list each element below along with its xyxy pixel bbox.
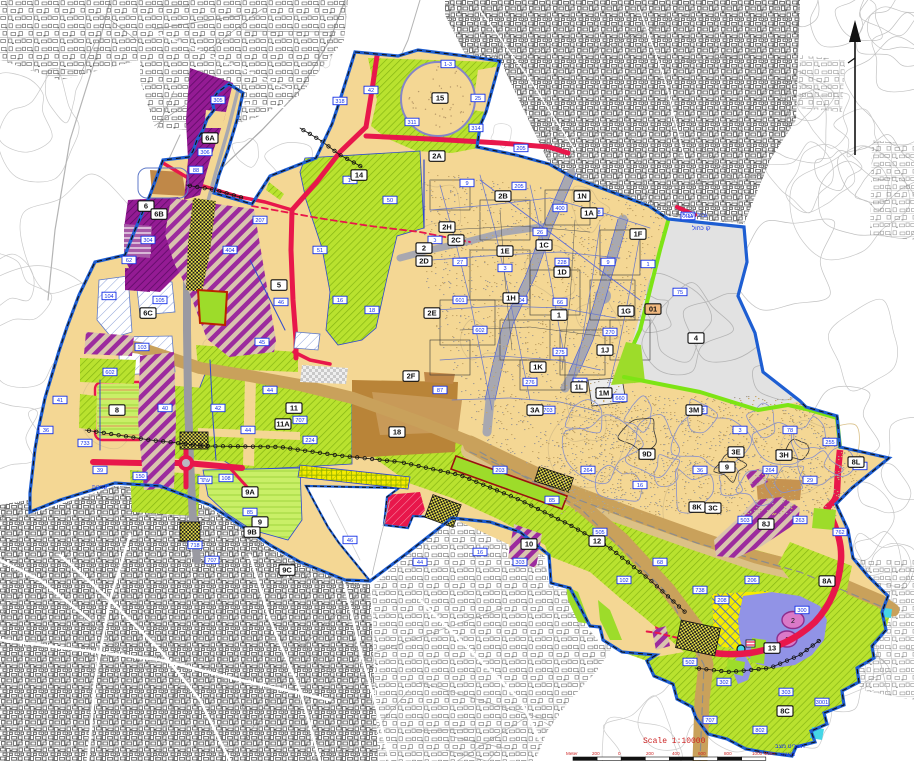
svg-text:15: 15 [436, 94, 444, 103]
svg-text:200: 200 [592, 751, 600, 756]
svg-text:255: 255 [825, 440, 834, 446]
svg-text:600: 600 [698, 751, 706, 756]
svg-text:62: 62 [126, 258, 132, 264]
svg-text:8: 8 [115, 406, 119, 415]
svg-text:5: 5 [277, 281, 281, 290]
svg-text:46: 46 [347, 538, 353, 544]
svg-text:302: 302 [719, 680, 728, 686]
svg-text:703: 703 [543, 408, 552, 414]
svg-text:300: 300 [797, 608, 806, 614]
svg-text:150: 150 [135, 474, 144, 480]
svg-text:200: 200 [646, 751, 654, 756]
svg-text:40: 40 [162, 406, 168, 412]
svg-text:707: 707 [207, 558, 216, 564]
svg-text:16: 16 [637, 483, 643, 489]
svg-text:1H: 1H [506, 294, 516, 303]
svg-text:1: 1 [557, 311, 561, 320]
svg-text:3: 3 [738, 428, 741, 434]
svg-text:3001: 3001 [816, 700, 828, 706]
svg-text:8C: 8C [780, 707, 790, 716]
svg-text:66: 66 [557, 300, 563, 306]
svg-text:1J: 1J [601, 346, 609, 355]
svg-text:264: 264 [765, 468, 774, 474]
svg-text:303: 303 [781, 690, 790, 696]
svg-text:2B: 2B [498, 192, 508, 201]
svg-text:88: 88 [193, 168, 199, 174]
svg-text:Meter: Meter [566, 751, 578, 756]
svg-text:263: 263 [795, 518, 804, 524]
svg-text:2F: 2F [407, 372, 416, 381]
svg-text:2A: 2A [432, 152, 442, 161]
svg-text:10: 10 [525, 540, 533, 549]
svg-text:75: 75 [677, 290, 683, 296]
svg-text:707: 707 [705, 718, 714, 724]
svg-text:44: 44 [245, 428, 251, 434]
svg-text:718: 718 [190, 543, 199, 549]
svg-text:שדרות: שדרות [92, 485, 107, 491]
svg-text:802: 802 [755, 728, 764, 734]
svg-text:50: 50 [387, 198, 393, 204]
svg-text:1-3: 1-3 [444, 62, 452, 68]
svg-text:3A: 3A [530, 406, 540, 415]
svg-text:400: 400 [555, 206, 564, 212]
svg-text:1A: 1A [584, 209, 594, 218]
svg-text:2H: 2H [442, 223, 452, 232]
svg-text:1G: 1G [621, 307, 631, 316]
svg-text:602: 602 [475, 328, 484, 334]
svg-text:1: 1 [646, 262, 649, 268]
svg-text:303: 303 [515, 560, 524, 566]
svg-text:800: 800 [724, 751, 732, 756]
svg-text:1E: 1E [500, 247, 509, 256]
svg-text:42: 42 [215, 406, 221, 412]
svg-text:44: 44 [417, 560, 423, 566]
svg-text:85: 85 [549, 498, 555, 504]
svg-text:36: 36 [697, 468, 703, 474]
svg-text:01: 01 [649, 305, 657, 314]
svg-text:503: 503 [740, 518, 749, 524]
svg-text:51: 51 [317, 248, 323, 254]
svg-text:כ: כ [434, 238, 437, 244]
svg-text:203: 203 [495, 468, 504, 474]
svg-text:306: 306 [200, 150, 209, 156]
svg-text:224: 224 [305, 438, 314, 444]
svg-text:103: 103 [137, 345, 146, 351]
svg-text:11: 11 [290, 404, 298, 413]
svg-text:78: 78 [787, 428, 793, 434]
svg-text:13: 13 [768, 644, 776, 653]
svg-text:8K: 8K [692, 503, 702, 512]
svg-text:תשריט מצב: תשריט מצב [775, 744, 805, 750]
svg-text:6C: 6C [143, 309, 153, 318]
svg-text:9B: 9B [247, 528, 257, 537]
svg-text:6B: 6B [154, 210, 164, 219]
svg-text:12: 12 [593, 537, 601, 546]
svg-text:1L: 1L [575, 383, 584, 392]
svg-text:304: 304 [143, 238, 152, 244]
svg-text:207: 207 [255, 218, 264, 224]
svg-text:9: 9 [725, 463, 729, 472]
svg-text:3: 3 [503, 266, 506, 272]
svg-text:8J: 8J [762, 520, 770, 529]
svg-text:264: 264 [583, 468, 592, 474]
svg-text:318: 318 [335, 99, 344, 105]
svg-text:3H: 3H [779, 451, 789, 460]
svg-text:2: 2 [422, 244, 426, 253]
svg-text:228: 228 [557, 260, 566, 266]
svg-text:1000 Meter: 1000 Meter [752, 751, 776, 756]
svg-text:206: 206 [747, 578, 756, 584]
svg-text:9C: 9C [282, 566, 292, 575]
svg-text:קו כחול: קו כחול [692, 224, 711, 232]
svg-text:16: 16 [477, 550, 483, 556]
svg-text:85: 85 [247, 510, 253, 516]
svg-text:גבול תכנית: גבול תכנית [682, 212, 708, 219]
svg-text:1F: 1F [634, 230, 643, 239]
svg-text:205: 205 [514, 184, 523, 190]
svg-text:11A: 11A [276, 420, 290, 429]
svg-text:1D: 1D [557, 268, 567, 277]
svg-text:102: 102 [619, 578, 628, 584]
svg-text:68: 68 [657, 560, 663, 566]
svg-text:3C: 3C [708, 504, 718, 513]
svg-text:18: 18 [393, 428, 401, 437]
svg-text:8A: 8A [822, 577, 832, 586]
svg-text:314: 314 [471, 126, 480, 132]
svg-text:1K: 1K [533, 363, 543, 372]
svg-text:41: 41 [57, 398, 63, 404]
svg-text:404: 404 [225, 248, 234, 254]
svg-text:1C: 1C [539, 241, 549, 250]
svg-text:660: 660 [615, 396, 624, 402]
svg-text:707: 707 [295, 418, 304, 424]
svg-text:39: 39 [97, 468, 103, 474]
svg-text:1M: 1M [599, 389, 609, 398]
svg-text:108: 108 [221, 476, 230, 482]
svg-text:208: 208 [717, 598, 726, 604]
svg-text:1N: 1N [577, 192, 587, 201]
svg-text:270: 270 [605, 330, 614, 336]
svg-text:87: 87 [437, 388, 443, 394]
svg-text:602: 602 [105, 370, 114, 376]
svg-text:400: 400 [672, 751, 680, 756]
svg-text:מאושר: מאושר [778, 752, 795, 758]
svg-text:105: 105 [155, 298, 164, 304]
svg-text:9: 9 [606, 260, 609, 266]
svg-text:3M: 3M [689, 406, 699, 415]
svg-text:2C: 2C [451, 236, 461, 245]
svg-text:26: 26 [537, 230, 543, 236]
svg-text:275: 275 [555, 350, 564, 356]
svg-text:505: 505 [595, 530, 604, 536]
svg-text:2E: 2E [427, 309, 436, 318]
svg-text:16: 16 [337, 298, 343, 304]
svg-text:45: 45 [259, 340, 265, 346]
svg-text:Scale 1:10000: Scale 1:10000 [643, 737, 706, 746]
svg-text:36: 36 [43, 428, 49, 434]
svg-text:6: 6 [144, 202, 148, 211]
svg-text:2D: 2D [419, 257, 429, 266]
svg-text:27: 27 [457, 260, 463, 266]
svg-text:601: 601 [455, 298, 464, 304]
svg-text:46: 46 [278, 300, 284, 306]
svg-text:205: 205 [516, 146, 525, 152]
svg-text:18: 18 [369, 308, 375, 314]
svg-text:8L: 8L [852, 458, 861, 467]
svg-text:9A: 9A [245, 488, 255, 497]
svg-text:733: 733 [80, 441, 89, 447]
svg-text:9: 9 [465, 181, 468, 187]
svg-text:44: 44 [267, 388, 273, 394]
svg-text:29: 29 [807, 478, 813, 484]
svg-text:3E: 3E [731, 448, 740, 457]
svg-text:9: 9 [258, 518, 262, 527]
svg-text:305: 305 [213, 98, 222, 104]
svg-text:502: 502 [685, 660, 694, 666]
svg-text:104: 104 [104, 294, 113, 300]
svg-text:0: 0 [618, 751, 621, 756]
svg-text:6A: 6A [205, 134, 215, 143]
svg-text:762: 762 [835, 530, 844, 536]
svg-text:25: 25 [475, 96, 481, 102]
svg-text:9D: 9D [642, 450, 652, 459]
svg-text:311: 311 [408, 120, 417, 126]
svg-text:276: 276 [525, 380, 534, 386]
svg-text:738: 738 [695, 588, 704, 594]
svg-text:14: 14 [355, 171, 364, 180]
svg-text:2: 2 [791, 618, 795, 625]
svg-text:42: 42 [368, 88, 374, 94]
svg-text:עתד: עתד [200, 478, 210, 484]
